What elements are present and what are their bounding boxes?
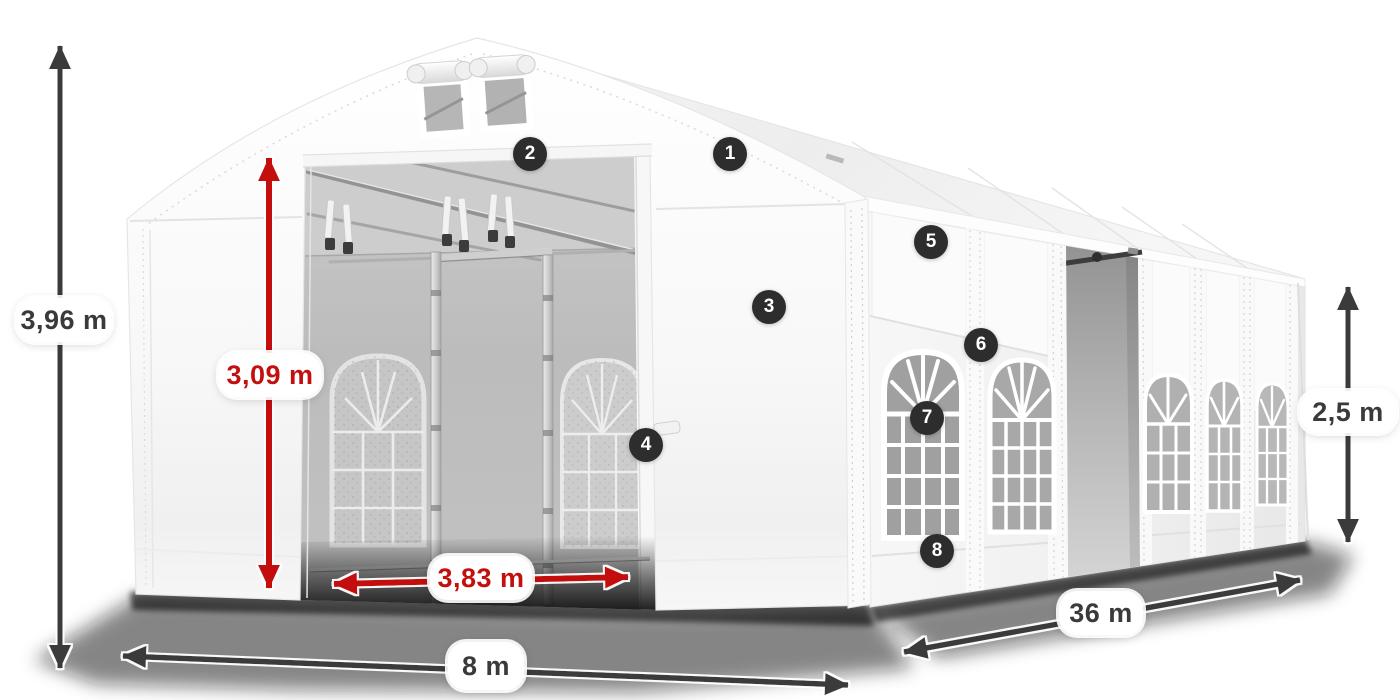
dimension-label-side-wall-height: 2,5 m [1300,391,1396,433]
side-window-2 [990,360,1054,532]
tent-dimension-diagram: 3,96 m 3,09 m 3,83 m 8 m 36 m 2,5 m 1 2 … [0,0,1400,700]
feature-badge-3: 3 [752,290,786,324]
feature-badge-5: 5 [914,225,948,259]
feature-badge-6: 6 [964,328,998,362]
feature-badge-8: 8 [920,534,954,568]
feature-badge-7: 7 [910,401,944,435]
dimension-label-total-height: 3,96 m [17,298,111,342]
side-sliding-door-opening [1060,246,1142,577]
tent-interior [295,145,660,615]
front-corner-strap [845,199,871,608]
feature-badge-4: 4 [629,428,663,462]
side-window-1 [884,352,962,538]
feature-badge-2: 2 [513,137,547,171]
interior-window-left [332,356,424,545]
side-window-3 [1145,375,1192,512]
tent-illustration [0,0,1400,700]
side-window-4 [1207,380,1242,511]
side-window-5 [1257,384,1288,505]
dimension-label-front-width: 8 m [448,642,524,690]
feature-badge-1: 1 [713,137,747,171]
dimension-label-entrance-width: 3,83 m [430,556,532,600]
dimension-label-entrance-height: 3,09 m [219,353,321,397]
dimension-label-side-length: 36 m [1059,591,1143,635]
